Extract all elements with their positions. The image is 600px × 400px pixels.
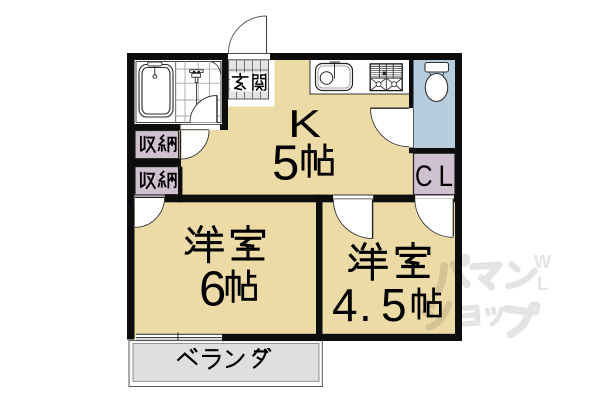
svg-text:C: C [415, 160, 433, 193]
svg-text:5: 5 [381, 279, 407, 331]
svg-text:.: . [359, 279, 372, 331]
svg-text:5: 5 [272, 137, 299, 191]
svg-text:4: 4 [332, 279, 358, 331]
svg-text:L: L [439, 160, 454, 193]
svg-text:L: L [537, 274, 549, 295]
svg-text:6: 6 [199, 262, 226, 316]
svg-text:W: W [534, 252, 551, 272]
